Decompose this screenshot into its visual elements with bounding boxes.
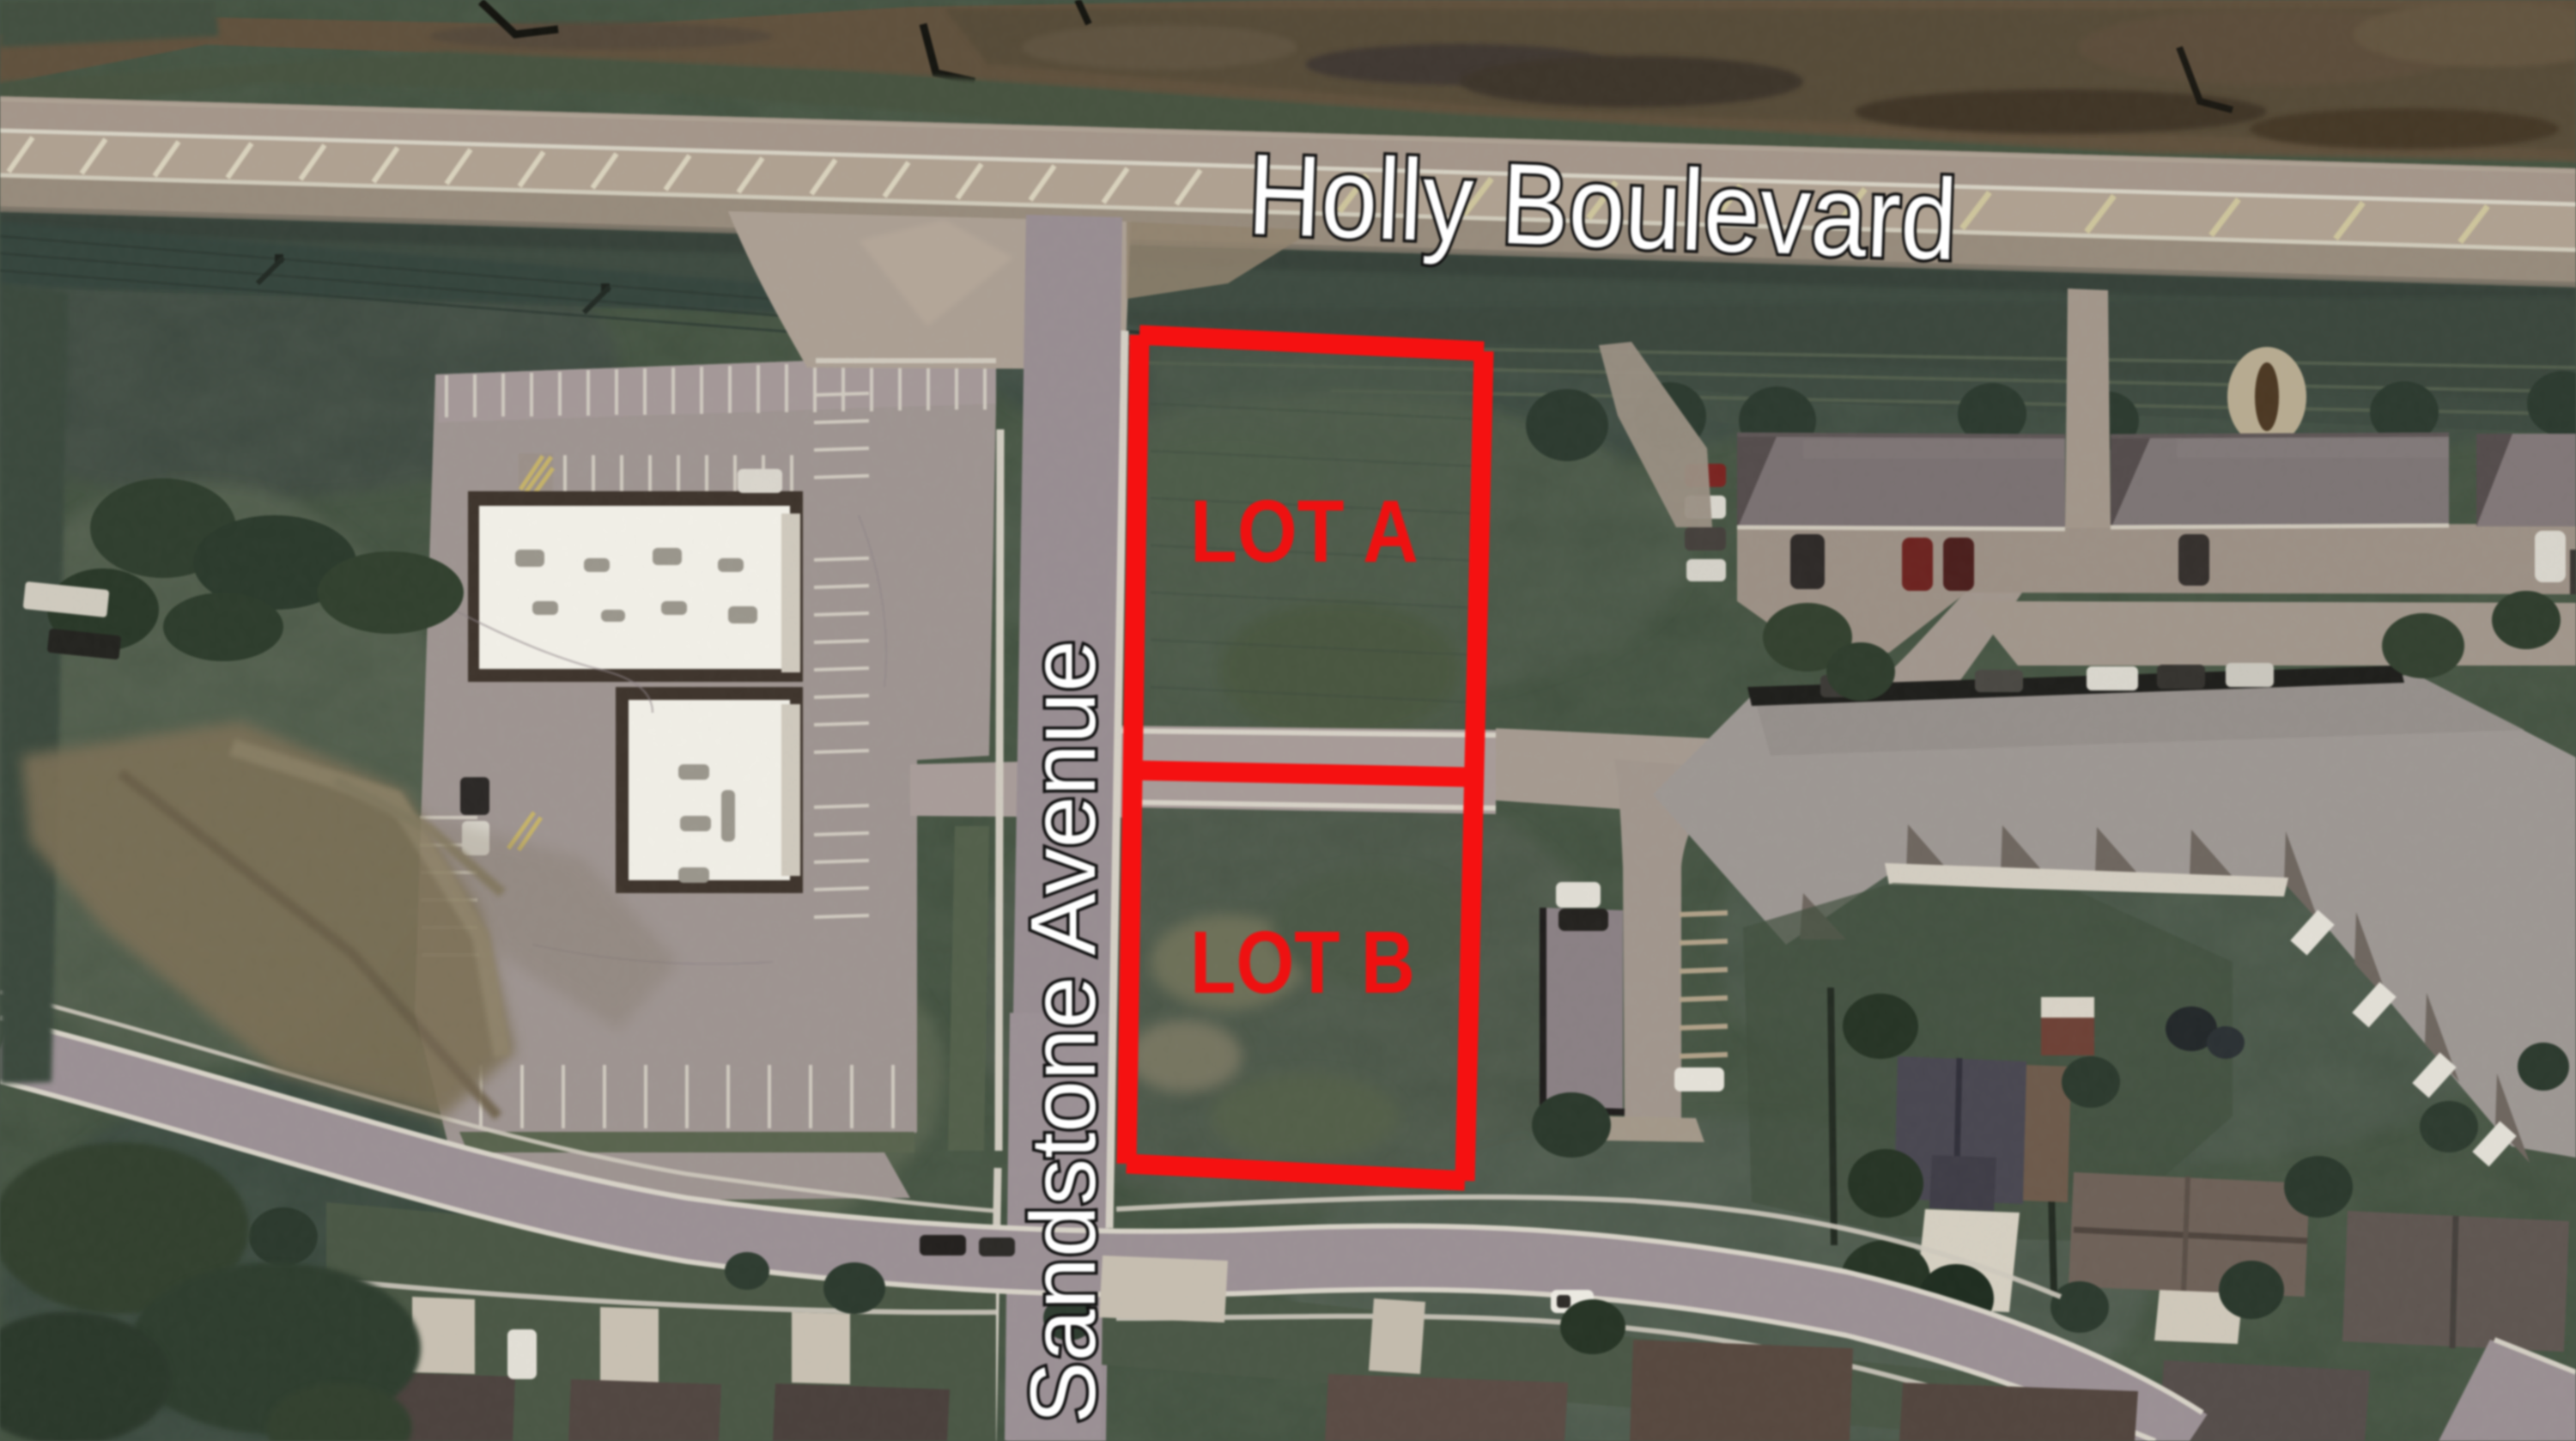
svg-text:LOT A: LOT A [1190,482,1419,581]
svg-text:Sandstone Avenue: Sandstone Avenue [1011,640,1115,1424]
svg-text:LOT B: LOT B [1190,913,1415,1012]
svg-text:Holly Boulevard: Holly Boulevard [1246,131,1959,284]
